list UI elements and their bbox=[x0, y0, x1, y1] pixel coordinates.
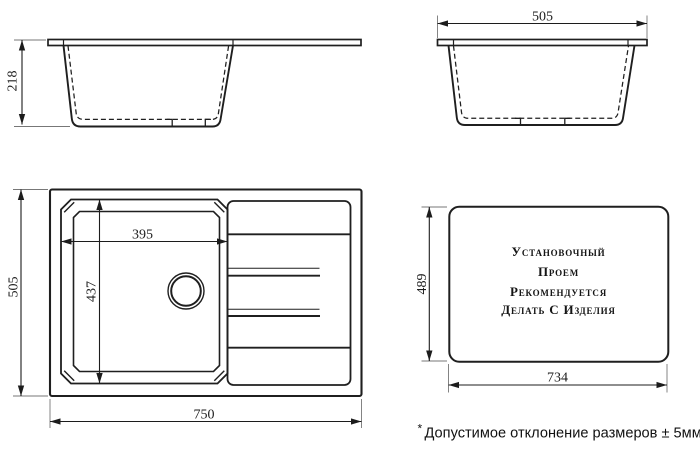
bowl-hidden-line bbox=[68, 46, 229, 120]
dim-label-218: 218 bbox=[6, 71, 21, 92]
dim-label-489: 489 bbox=[415, 274, 430, 295]
cutout-dimension-734: 734 bbox=[449, 364, 668, 393]
drain-hole-outer bbox=[168, 273, 204, 309]
side-elevation-view bbox=[438, 40, 648, 126]
sink-dimension-drawing: 218 505 395 437 bbox=[0, 0, 700, 451]
dim-label-437: 437 bbox=[85, 281, 100, 302]
drain-hole-inner bbox=[171, 276, 201, 306]
top-dimension-395: 395 bbox=[61, 228, 228, 243]
top-dimension-505: 505 bbox=[7, 190, 49, 397]
cutout-dimension-489: 489 bbox=[415, 207, 447, 361]
mounting-clip-mark bbox=[515, 118, 521, 124]
mounting-clip-mark bbox=[565, 118, 571, 124]
top-dimension-750: 750 bbox=[50, 399, 362, 428]
bowl-hidden-line bbox=[454, 46, 629, 119]
cutout-diagram: Установочный Проем Рекомендуется Делать … bbox=[449, 207, 668, 362]
front-dimension-218: 218 bbox=[6, 40, 71, 127]
bowl-profile bbox=[449, 46, 635, 126]
drawing-canvas: 218 505 395 437 bbox=[0, 0, 700, 451]
install-note-line: Делать С Изделия bbox=[501, 302, 615, 317]
mounting-clip-mark bbox=[167, 119, 173, 125]
bowl-profile bbox=[64, 46, 234, 127]
install-note-line: Установочный bbox=[512, 244, 606, 259]
dim-label-505-depth: 505 bbox=[7, 277, 22, 298]
mounting-clip-mark bbox=[205, 119, 211, 125]
install-note-line: Рекомендуется bbox=[510, 284, 607, 299]
dim-label-734: 734 bbox=[547, 371, 568, 386]
footnote-text: Допустимое отклонение размеров ± 5мм bbox=[425, 426, 700, 442]
dim-label-395: 395 bbox=[132, 228, 153, 243]
side-dimension-505: 505 bbox=[438, 10, 648, 39]
drainboard-outline bbox=[228, 201, 351, 385]
tolerance-footnote: * Допустимое отклонение размеров ± 5мм bbox=[418, 422, 700, 442]
install-note-line: Проем bbox=[538, 264, 579, 279]
top-dimension-437: 437 bbox=[85, 200, 100, 384]
footnote-asterisk: * bbox=[418, 422, 423, 436]
front-elevation-view bbox=[48, 40, 361, 127]
rim-profile bbox=[48, 40, 361, 46]
dim-label-750: 750 bbox=[194, 408, 215, 423]
dim-label-505: 505 bbox=[532, 10, 553, 25]
rim-profile bbox=[438, 40, 648, 46]
